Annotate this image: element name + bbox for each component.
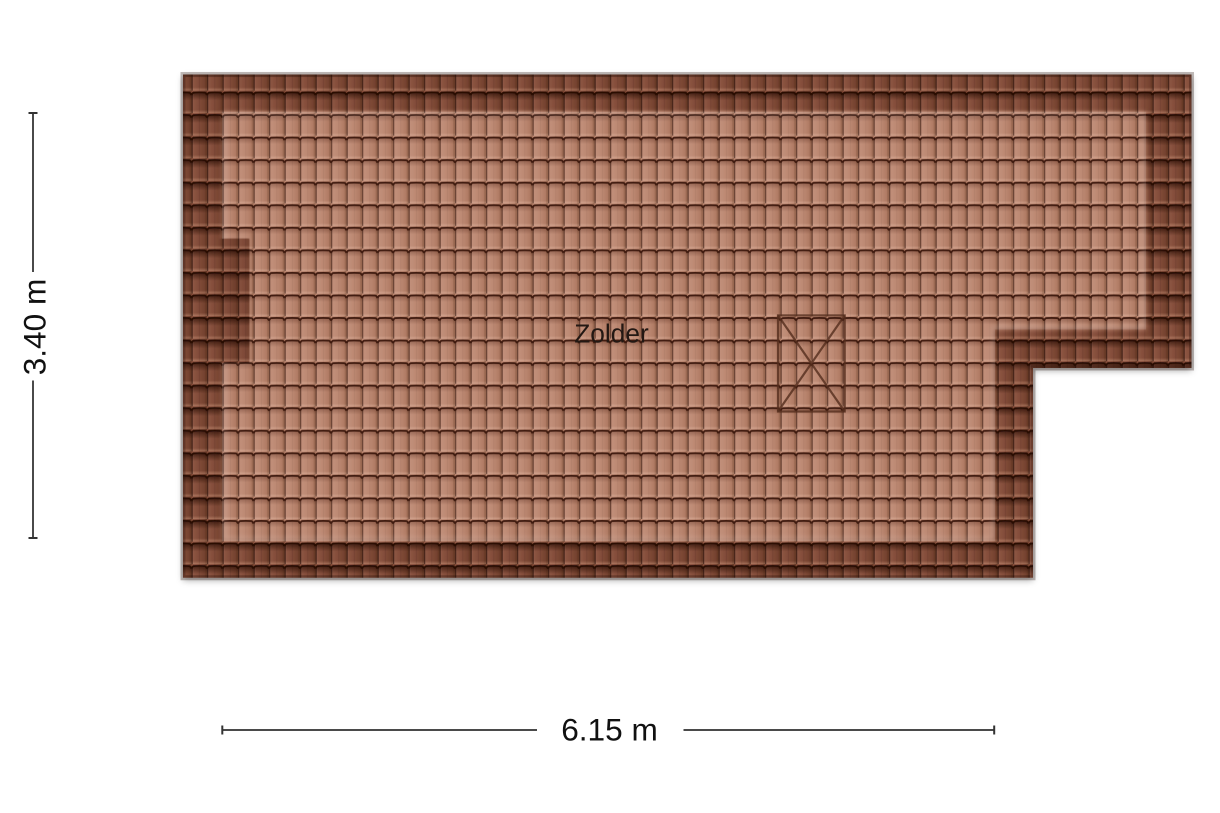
svg-text:Zolder: Zolder <box>574 319 649 349</box>
svg-text:3.40 m: 3.40 m <box>17 279 53 376</box>
svg-text:6.15 m: 6.15 m <box>561 711 658 747</box>
